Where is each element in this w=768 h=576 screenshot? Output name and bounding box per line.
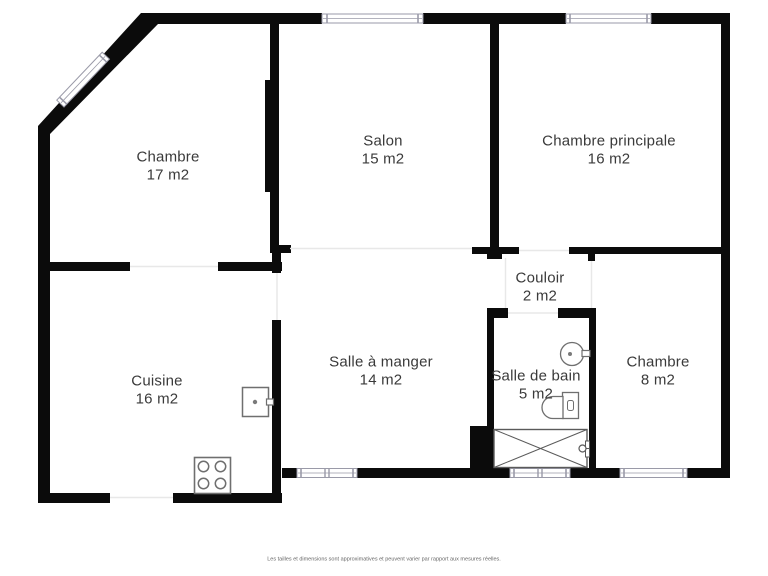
room-label-salon: Salon 15 m2 <box>362 133 405 168</box>
room-area: 5 m2 <box>491 385 580 403</box>
room-area: 2 m2 <box>516 287 565 305</box>
room-area: 15 m2 <box>362 150 405 168</box>
chambre-principale-window-icon <box>566 14 651 23</box>
salon-window-icon <box>322 14 423 23</box>
room-name: Chambre principale <box>542 133 676 151</box>
washing-machine-icon <box>243 388 274 417</box>
stove-icon <box>195 458 231 494</box>
room-area: 8 m2 <box>626 371 689 389</box>
room-name: Cuisine <box>131 373 182 391</box>
room-label-salle-de-bain: Salle de bain 5 m2 <box>491 368 580 403</box>
room-name: Chambre <box>136 149 199 167</box>
disclaimer-text: Les tailles et dimensions sont approxima… <box>267 556 501 562</box>
walls <box>38 13 730 503</box>
floor-plan-drawing <box>0 0 768 576</box>
chambre2-window-icon <box>620 469 687 478</box>
dining-window-icon <box>297 469 357 478</box>
bathroom-window-icon <box>510 469 570 478</box>
room-area: 17 m2 <box>136 166 199 184</box>
room-name: Salon <box>362 133 405 151</box>
room-name: Salle de bain <box>491 368 580 386</box>
room-name: Salle à manger <box>329 354 433 372</box>
room-area: 16 m2 <box>131 390 182 408</box>
sink-icon <box>561 343 591 366</box>
room-label-couloir: Couloir 2 m2 <box>516 270 565 305</box>
bathtub-icon <box>494 430 590 468</box>
room-area: 14 m2 <box>329 371 433 389</box>
room-name: Chambre <box>626 354 689 372</box>
room-label-chambre-1: Chambre 17 m2 <box>136 149 199 184</box>
room-label-chambre-2: Chambre 8 m2 <box>626 354 689 389</box>
diagonal-wall <box>38 13 158 134</box>
room-label-chambre-principale: Chambre principale 16 m2 <box>542 133 676 168</box>
floor-plan: Chambre 17 m2 Salon 15 m2 Chambre princi… <box>0 0 768 576</box>
room-label-cuisine: Cuisine 16 m2 <box>131 373 182 408</box>
room-name: Couloir <box>516 270 565 288</box>
room-label-salle-a-manger: Salle à manger 14 m2 <box>329 354 433 389</box>
room-area: 16 m2 <box>542 150 676 168</box>
